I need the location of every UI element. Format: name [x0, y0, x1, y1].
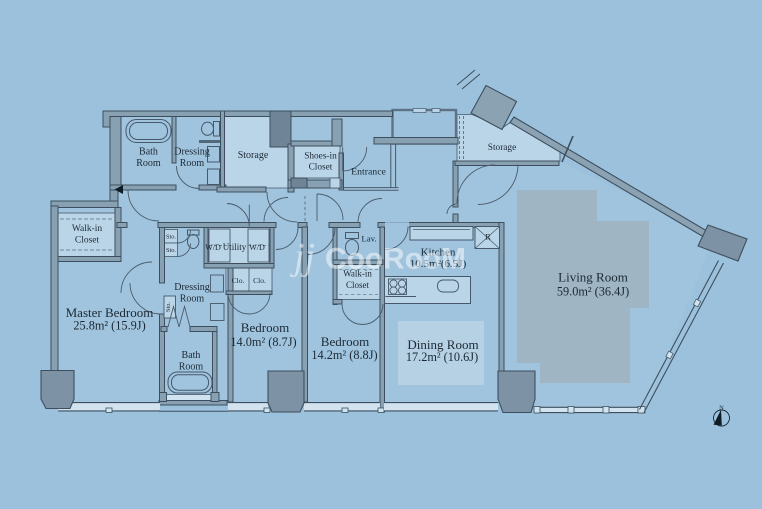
svg-text:Bedroom: Bedroom — [321, 334, 369, 349]
svg-text:Shoes-in: Shoes-in — [304, 152, 337, 162]
svg-text:Sto.: Sto. — [165, 302, 172, 312]
svg-text:Clo.: Clo. — [232, 276, 245, 285]
svg-text:59.0m² (36.4J): 59.0m² (36.4J) — [557, 285, 629, 299]
svg-text:Walk-in: Walk-in — [72, 224, 103, 234]
svg-text:Utility: Utility — [223, 242, 247, 252]
svg-text:Sto.: Sto. — [166, 247, 176, 254]
svg-text:Room: Room — [180, 158, 205, 169]
svg-text:17.2m² (10.6J): 17.2m² (10.6J) — [406, 350, 478, 364]
svg-text:Room: Room — [179, 362, 204, 373]
svg-text:CooRooM: CooRooM — [325, 243, 466, 276]
svg-text:Dressing: Dressing — [174, 147, 210, 158]
svg-text:N: N — [719, 405, 724, 412]
svg-text:Storage: Storage — [488, 143, 516, 153]
svg-text:25.8m² (15.9J): 25.8m² (15.9J) — [73, 319, 145, 333]
svg-text:14.2m² (8.8J): 14.2m² (8.8J) — [311, 348, 377, 362]
svg-text:14.0m² (8.7J): 14.0m² (8.7J) — [230, 335, 296, 349]
svg-text:W/D: W/D — [205, 243, 221, 252]
svg-text:R: R — [485, 232, 491, 242]
svg-text:Sto.: Sto. — [166, 234, 176, 241]
svg-text:Entrance: Entrance — [351, 167, 386, 178]
svg-text:Room: Room — [180, 294, 205, 305]
svg-text:Closet: Closet — [309, 163, 333, 173]
svg-text:Bath: Bath — [139, 147, 158, 158]
svg-text:Dressing: Dressing — [174, 282, 210, 293]
svg-text:Bath: Bath — [182, 350, 201, 361]
svg-text:W/D: W/D — [249, 243, 265, 252]
svg-text:Closet: Closet — [75, 236, 100, 246]
svg-text:Clo.: Clo. — [253, 276, 266, 285]
svg-text:Closet: Closet — [346, 280, 370, 290]
svg-text:Room: Room — [136, 158, 161, 169]
svg-text:Storage: Storage — [238, 150, 269, 161]
svg-text:Bedroom: Bedroom — [241, 320, 289, 335]
svg-text:Living Room: Living Room — [558, 270, 628, 285]
